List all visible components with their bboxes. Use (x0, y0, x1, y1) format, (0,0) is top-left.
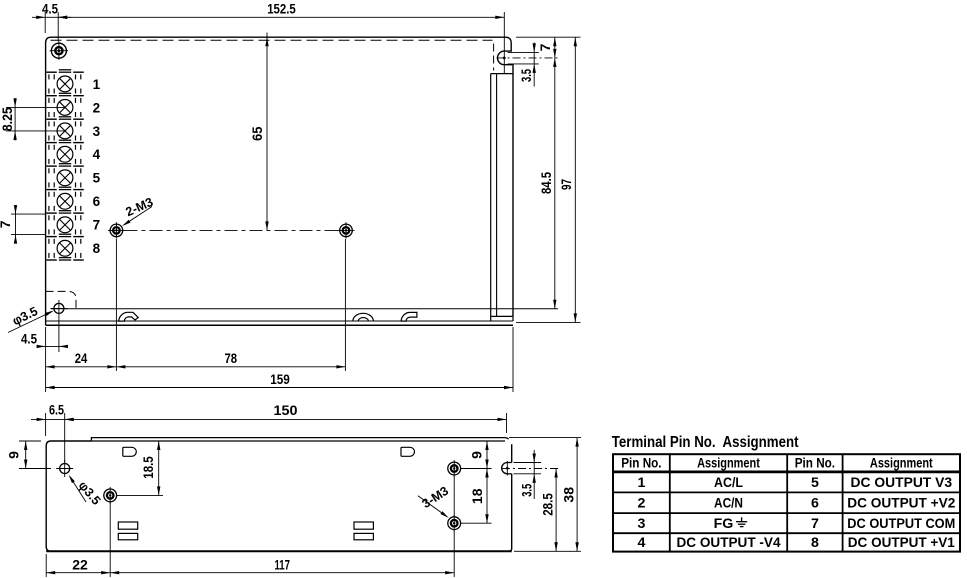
svg-text:97: 97 (558, 179, 574, 190)
svg-text:Pin No.: Pin No. (795, 456, 835, 472)
svg-text:Assignment: Assignment (870, 456, 933, 472)
svg-text:4: 4 (93, 147, 101, 162)
svg-text:8: 8 (93, 241, 101, 256)
svg-text:FG: FG (714, 516, 734, 532)
svg-text:84.5: 84.5 (538, 172, 554, 194)
svg-text:AC/L: AC/L (714, 475, 743, 491)
svg-text:28.5: 28.5 (539, 493, 555, 516)
svg-text:7: 7 (811, 516, 819, 532)
svg-text:150: 150 (274, 402, 298, 418)
svg-text:DC OUTPUT +V1: DC OUTPUT +V1 (848, 535, 955, 551)
svg-text:8: 8 (811, 535, 819, 551)
svg-text:3: 3 (637, 516, 645, 532)
svg-text:65: 65 (249, 126, 265, 141)
svg-text:18: 18 (469, 488, 485, 504)
svg-text:2: 2 (93, 100, 101, 115)
svg-text:1: 1 (93, 77, 101, 92)
svg-text:3: 3 (93, 124, 101, 139)
svg-text:4: 4 (637, 535, 645, 551)
svg-text:Assignment: Assignment (697, 456, 760, 472)
svg-text:3.5: 3.5 (518, 69, 534, 82)
svg-text:7: 7 (537, 43, 553, 51)
svg-text:24: 24 (75, 350, 88, 366)
svg-text:2: 2 (637, 496, 645, 512)
svg-text:6: 6 (93, 194, 101, 209)
svg-text:7: 7 (0, 220, 13, 228)
svg-text:1: 1 (637, 475, 645, 491)
svg-text:AC/N: AC/N (714, 496, 743, 512)
svg-text:78: 78 (225, 350, 238, 366)
svg-text:DC OUTPUT -V4: DC OUTPUT -V4 (677, 535, 781, 551)
svg-text:4.5: 4.5 (21, 331, 37, 347)
svg-text:Pin No.: Pin No. (621, 456, 661, 472)
svg-text:22: 22 (72, 557, 88, 573)
svg-text:DC OUTPUT COM: DC OUTPUT COM (847, 516, 955, 532)
svg-text:6.5: 6.5 (49, 402, 64, 418)
svg-text:8.25: 8.25 (0, 107, 15, 131)
svg-text:9: 9 (5, 451, 21, 459)
svg-text:6: 6 (811, 496, 819, 512)
svg-text:117: 117 (274, 557, 290, 573)
svg-text:4.5: 4.5 (42, 1, 58, 17)
svg-text:DC OUTPUT +V2: DC OUTPUT +V2 (847, 496, 955, 512)
svg-text:18.5: 18.5 (140, 456, 156, 479)
svg-text:9: 9 (469, 451, 485, 459)
svg-text:152.5: 152.5 (267, 1, 296, 17)
svg-text:5: 5 (811, 475, 819, 491)
svg-text:5: 5 (93, 171, 101, 186)
svg-text:7: 7 (93, 218, 101, 233)
svg-text:3.5: 3.5 (519, 484, 535, 497)
svg-text:Terminal Pin No. Assignment: Terminal Pin No. Assignment (612, 434, 799, 451)
svg-text:159: 159 (270, 371, 290, 387)
svg-text:38: 38 (560, 487, 576, 503)
svg-text:DC OUTPUT V3: DC OUTPUT V3 (851, 475, 953, 491)
